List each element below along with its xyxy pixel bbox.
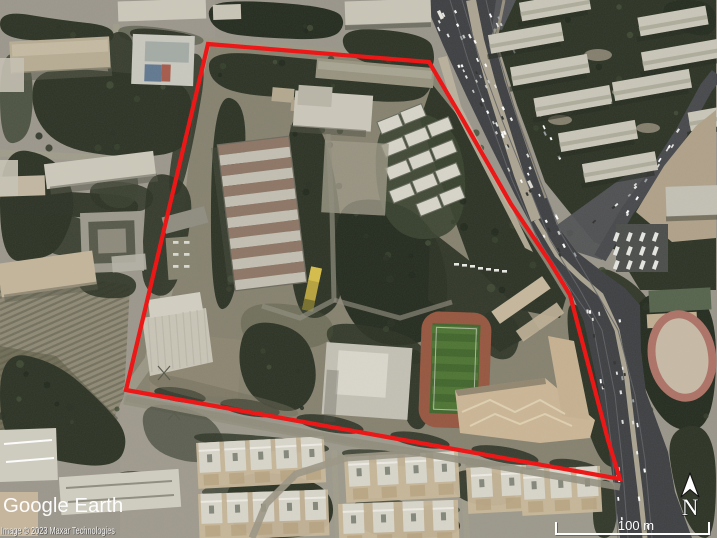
svg-text:N: N	[682, 495, 699, 520]
svg-text:Google Earth: Google Earth	[3, 495, 123, 517]
svg-text:Image © 2023 Maxar Technologie: Image © 2023 Maxar Technologies	[1, 525, 115, 537]
svg-text:100 m: 100 m	[618, 518, 654, 533]
